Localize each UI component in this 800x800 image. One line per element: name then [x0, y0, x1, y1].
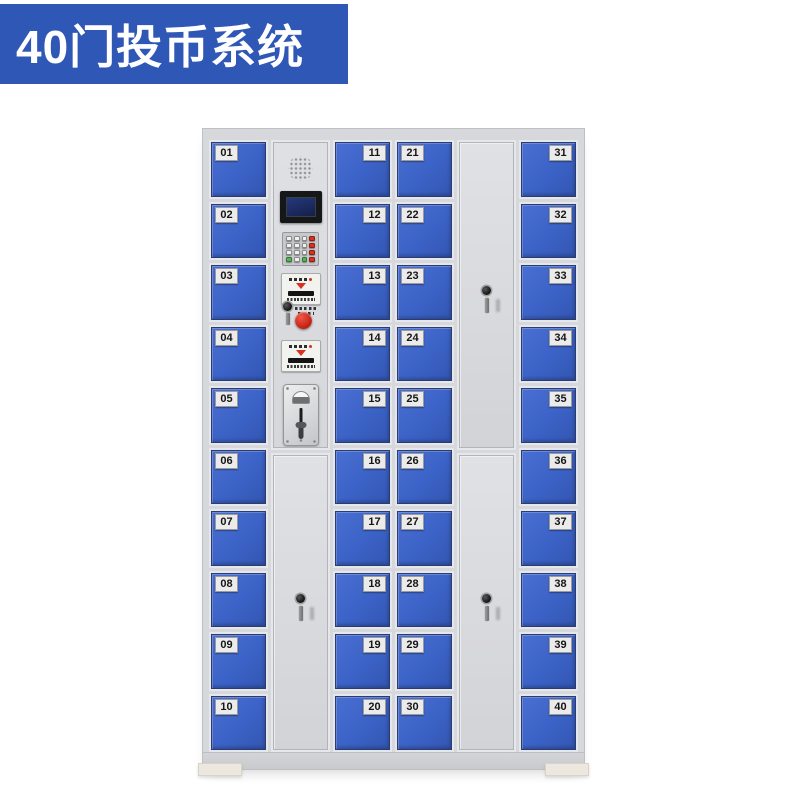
keypad-button[interactable]	[286, 250, 292, 255]
locker-door-26[interactable]: 26	[397, 450, 452, 505]
locker-cabinet: 0102030405060708091011121314151617181920…	[202, 128, 585, 770]
door-column-01-10: 01020304050607080910	[211, 142, 266, 750]
locker-door-25[interactable]: 25	[397, 388, 452, 443]
locker-door-21[interactable]: 21	[397, 142, 452, 197]
door-number-label: 30	[401, 699, 424, 715]
locker-door-13[interactable]: 13	[335, 265, 390, 320]
locker-door-33[interactable]: 33	[521, 265, 576, 320]
arrow-down-icon	[296, 350, 306, 356]
door-number-label: 21	[401, 145, 424, 161]
door-column-31-40: 31323334353637383940	[521, 142, 576, 750]
keypad-button[interactable]	[286, 243, 292, 248]
keyhole-icon	[482, 286, 491, 295]
hanging-key	[485, 606, 489, 621]
locker-door-01[interactable]: 01	[211, 142, 266, 197]
door-number-label: 27	[401, 514, 424, 530]
panel-red-glyph	[309, 278, 312, 281]
door-number-label: 02	[215, 207, 238, 223]
locker-door-23[interactable]: 23	[397, 265, 452, 320]
lcd-display	[280, 191, 322, 223]
locker-door-03[interactable]: 03	[211, 265, 266, 320]
locker-door-07[interactable]: 07	[211, 511, 266, 566]
keyhole-icon	[482, 594, 491, 603]
hanging-key	[485, 298, 489, 313]
service-door[interactable]	[459, 455, 514, 750]
locker-door-16[interactable]: 16	[335, 450, 390, 505]
locker-door-14[interactable]: 14	[335, 327, 390, 382]
banner-title: 40门投币系统	[16, 11, 304, 77]
screw-icon	[313, 440, 316, 443]
door-number-label: 04	[215, 330, 238, 346]
keypad	[282, 232, 319, 266]
locker-door-12[interactable]: 12	[335, 204, 390, 259]
service-door[interactable]	[459, 142, 514, 448]
coin-entry-bezel	[292, 391, 310, 404]
keypad-button[interactable]	[294, 250, 300, 255]
door-number-label: 03	[215, 268, 238, 284]
door-number-label: 35	[549, 391, 572, 407]
door-number-label: 11	[363, 145, 386, 161]
door-number-label: 22	[401, 207, 424, 223]
locker-door-18[interactable]: 18	[335, 573, 390, 628]
locker-door-19[interactable]: 19	[335, 634, 390, 689]
door-number-label: 18	[363, 576, 386, 592]
door-number-label: 29	[401, 637, 424, 653]
hanging-key	[299, 606, 303, 621]
keypad-button[interactable]	[302, 243, 308, 248]
panel-icon-row	[289, 344, 312, 348]
door-number-label: 09	[215, 637, 238, 653]
keypad-button[interactable]	[302, 257, 308, 262]
locker-door-17[interactable]: 17	[335, 511, 390, 566]
locker-door-11[interactable]: 11	[335, 142, 390, 197]
panel-caption	[287, 298, 315, 301]
keypad-button[interactable]	[294, 236, 300, 241]
door-number-label: 32	[549, 207, 572, 223]
door-number-label: 16	[363, 453, 386, 469]
panel-glyph	[299, 278, 302, 281]
door-number-label: 24	[401, 330, 424, 346]
screw-icon	[299, 439, 302, 442]
door-number-label: 01	[215, 145, 238, 161]
control-column	[273, 142, 328, 750]
keypad-button[interactable]	[286, 257, 292, 262]
bill-slot[interactable]	[288, 358, 314, 363]
door-number-label: 08	[215, 576, 238, 592]
locker-door-06[interactable]: 06	[211, 450, 266, 505]
card-slot[interactable]	[288, 291, 314, 296]
door-number-label: 12	[363, 207, 386, 223]
service-door-column	[459, 142, 514, 750]
locker-door-28[interactable]: 28	[397, 573, 452, 628]
keypad-button[interactable]	[309, 243, 315, 248]
hanging-key	[286, 313, 290, 325]
locker-door-40[interactable]: 40	[521, 696, 576, 751]
panel-glyph	[289, 345, 292, 348]
panel-glyph	[289, 278, 292, 281]
locker-door-15[interactable]: 15	[335, 388, 390, 443]
locker-door-39[interactable]: 39	[521, 634, 576, 689]
keypad-button[interactable]	[302, 236, 308, 241]
door-number-label: 25	[401, 391, 424, 407]
keypad-button[interactable]	[302, 250, 308, 255]
coin-return-button[interactable]	[295, 312, 312, 329]
door-number-label: 14	[363, 330, 386, 346]
door-number-label: 05	[215, 391, 238, 407]
keypad-button[interactable]	[294, 243, 300, 248]
service-door[interactable]	[273, 455, 328, 750]
keypad-button[interactable]	[309, 250, 315, 255]
door-number-label: 23	[401, 268, 424, 284]
service-key-area	[274, 308, 327, 338]
door-number-label: 38	[549, 576, 572, 592]
key-lock[interactable]	[295, 594, 307, 621]
coin-acceptor[interactable]	[283, 384, 319, 446]
cabinet-foot-right	[545, 763, 589, 776]
key-lock[interactable]	[481, 286, 493, 313]
door-number-label: 07	[215, 514, 238, 530]
key-lock[interactable]	[481, 594, 493, 621]
cabinet-base	[203, 752, 584, 769]
panel-red-glyph	[309, 345, 312, 348]
door-number-label: 15	[363, 391, 386, 407]
locker-door-22[interactable]: 22	[397, 204, 452, 259]
screw-icon	[313, 387, 316, 390]
arrow-down-icon	[296, 283, 306, 289]
keyhole-icon	[296, 594, 305, 603]
hanging-key-ghost	[496, 607, 500, 620]
locker-columns: 0102030405060708091011121314151617181920…	[211, 142, 576, 750]
bill-acceptor-panel	[281, 340, 321, 372]
locker-door-08[interactable]: 08	[211, 573, 266, 628]
locker-door-35[interactable]: 35	[521, 388, 576, 443]
locker-door-38[interactable]: 38	[521, 573, 576, 628]
door-number-label: 34	[549, 330, 572, 346]
door-number-label: 36	[549, 453, 572, 469]
locker-door-20[interactable]: 20	[335, 696, 390, 751]
hanging-key-ghost	[496, 299, 500, 312]
service-keyhole[interactable]	[283, 302, 292, 325]
door-number-label: 06	[215, 453, 238, 469]
door-number-label: 13	[363, 268, 386, 284]
door-number-label: 19	[363, 637, 386, 653]
door-number-label: 33	[549, 268, 572, 284]
locker-door-02[interactable]: 02	[211, 204, 266, 259]
panel-glyph	[304, 345, 307, 348]
control-panel	[273, 142, 328, 448]
locker-door-10[interactable]: 10	[211, 696, 266, 751]
locker-door-36[interactable]: 36	[521, 450, 576, 505]
locker-door-31[interactable]: 31	[521, 142, 576, 197]
keypad-button[interactable]	[309, 236, 315, 241]
panel-glyph	[304, 278, 307, 281]
cabinet-foot-left	[198, 763, 242, 776]
coin-slot[interactable]	[299, 408, 302, 423]
panel-glyph	[299, 345, 302, 348]
screw-icon	[286, 387, 289, 390]
locker-door-27[interactable]: 27	[397, 511, 452, 566]
hanging-key-ghost	[310, 607, 314, 620]
door-number-label: 26	[401, 453, 424, 469]
keyhole-icon	[283, 302, 292, 311]
locker-door-09[interactable]: 09	[211, 634, 266, 689]
screw-icon	[286, 440, 289, 443]
panel-glyph	[294, 278, 297, 281]
panel-icon-row	[289, 277, 312, 281]
door-column-11-20: 11121314151617181920	[335, 142, 390, 750]
door-number-label: 10	[215, 699, 238, 715]
locker-door-24[interactable]: 24	[397, 327, 452, 382]
door-number-label: 31	[549, 145, 572, 161]
door-number-label: 39	[549, 637, 572, 653]
door-number-label: 40	[549, 699, 572, 715]
keypad-button[interactable]	[309, 257, 315, 262]
door-number-label: 17	[363, 514, 386, 530]
locker-door-04[interactable]: 04	[211, 327, 266, 382]
keypad-button[interactable]	[294, 257, 300, 262]
lcd-screen	[286, 197, 316, 217]
locker-door-37[interactable]: 37	[521, 511, 576, 566]
locker-door-34[interactable]: 34	[521, 327, 576, 382]
door-number-label: 20	[363, 699, 386, 715]
door-number-label: 28	[401, 576, 424, 592]
panel-glyph	[294, 345, 297, 348]
product-banner: 40门投币系统	[0, 4, 348, 84]
locker-door-29[interactable]: 29	[397, 634, 452, 689]
card-reader-panel	[281, 273, 321, 305]
coin-return-lever[interactable]	[298, 425, 303, 439]
locker-door-30[interactable]: 30	[397, 696, 452, 751]
speaker-grille-icon	[288, 156, 313, 181]
door-column-21-30: 21222324252627282930	[397, 142, 452, 750]
panel-caption	[287, 365, 315, 368]
keypad-button[interactable]	[286, 236, 292, 241]
locker-door-05[interactable]: 05	[211, 388, 266, 443]
locker-door-32[interactable]: 32	[521, 204, 576, 259]
door-number-label: 37	[549, 514, 572, 530]
